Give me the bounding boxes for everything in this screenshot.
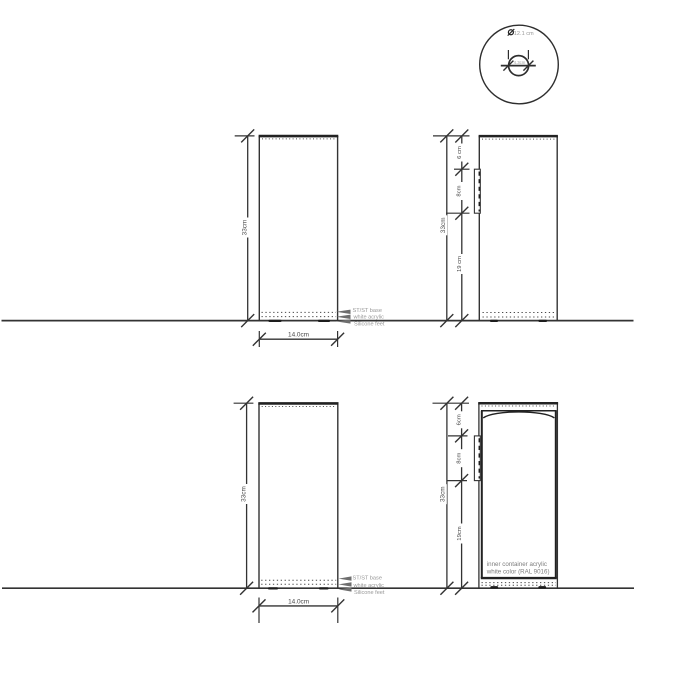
svg-text:4.3cm: 4.3cm — [514, 60, 526, 65]
svg-text:ST/ST base: ST/ST base — [353, 308, 382, 314]
svg-text:white acrylic: white acrylic — [353, 314, 385, 320]
svg-text:8cm: 8cm — [457, 185, 463, 196]
svg-text:inner container acrylic: inner container acrylic — [487, 561, 547, 568]
svg-text:Silicone feet: Silicone feet — [354, 321, 385, 327]
svg-text:14.0cm: 14.0cm — [288, 598, 309, 605]
svg-text:33cm: 33cm — [440, 486, 447, 502]
svg-text:12.1 cm: 12.1 cm — [514, 31, 534, 37]
svg-text:33cm: 33cm — [241, 220, 248, 236]
svg-text:8cm: 8cm — [457, 453, 463, 464]
svg-text:Silicone feet: Silicone feet — [354, 590, 385, 596]
svg-text:6cm: 6cm — [456, 414, 462, 425]
svg-text:14.0cm: 14.0cm — [288, 332, 309, 339]
svg-text:white acrylic: white acrylic — [353, 583, 385, 589]
svg-text:white color (RAL 9016): white color (RAL 9016) — [486, 569, 550, 576]
svg-text:6 cm: 6 cm — [457, 146, 463, 159]
svg-text:33cm: 33cm — [440, 217, 447, 233]
svg-text:ST/ST base: ST/ST base — [353, 576, 382, 582]
svg-text:19cm: 19cm — [457, 526, 463, 540]
svg-text:33cm: 33cm — [240, 486, 247, 502]
svg-text:19 cm: 19 cm — [457, 256, 463, 272]
